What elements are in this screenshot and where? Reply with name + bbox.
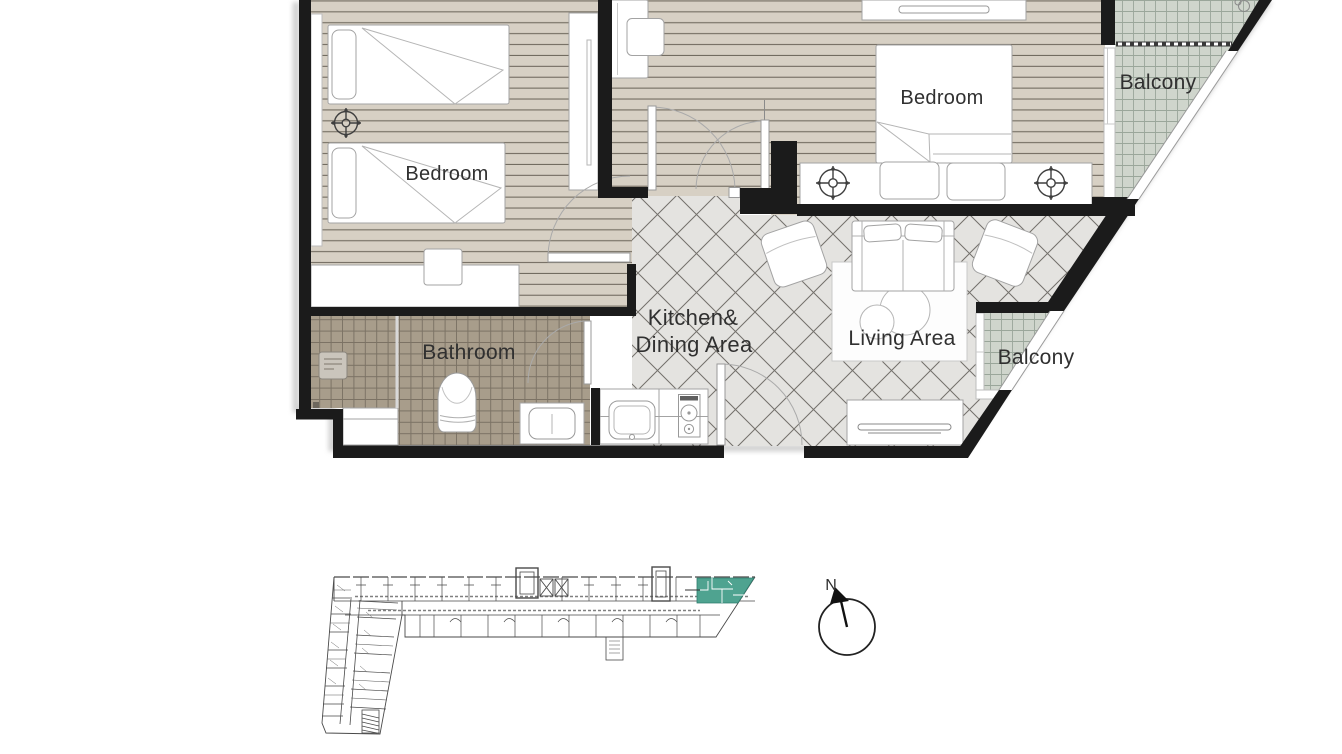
svg-text:Dining Area: Dining Area	[635, 332, 753, 357]
svg-text:Balcony: Balcony	[998, 346, 1075, 369]
svg-text:Bathroom: Bathroom	[422, 341, 515, 364]
svg-text:Living Area: Living Area	[848, 327, 955, 350]
svg-text:Bedroom: Bedroom	[405, 163, 488, 185]
svg-text:Kitchen&: Kitchen&	[648, 305, 738, 330]
svg-text:Balcony: Balcony	[1120, 71, 1197, 94]
svg-text:N: N	[825, 577, 837, 594]
svg-text:Bedroom: Bedroom	[900, 87, 983, 109]
